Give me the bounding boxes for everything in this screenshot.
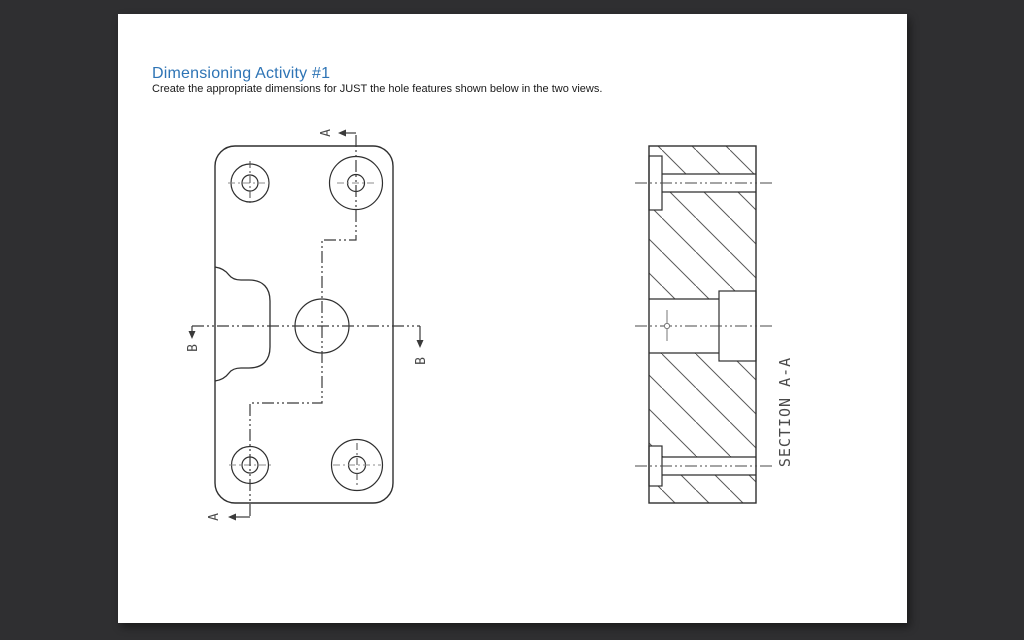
document-page: Dimensioning Activity #1 Create the appr…	[118, 14, 907, 623]
cut-label-a-bottom: A	[207, 513, 222, 521]
cutting-line-b-right-arrow	[417, 326, 424, 348]
technical-drawing: A A B B	[118, 14, 907, 623]
cutting-line-a-bottom-arrow	[228, 514, 250, 521]
cut-label-b-left: B	[186, 344, 201, 352]
cut-label-b-right: B	[414, 357, 429, 365]
plan-view: A A B B	[186, 129, 429, 521]
cut-label-a-top: A	[319, 129, 334, 137]
section-view: SECTION A-A	[635, 146, 794, 503]
section-caption: SECTION A-A	[776, 357, 794, 467]
viewer-background: { "document": { "title": "Dimensioning A…	[0, 0, 1024, 640]
cutting-line-b-left-arrow	[189, 326, 196, 339]
cutting-line-a-top-arrow	[338, 130, 356, 137]
